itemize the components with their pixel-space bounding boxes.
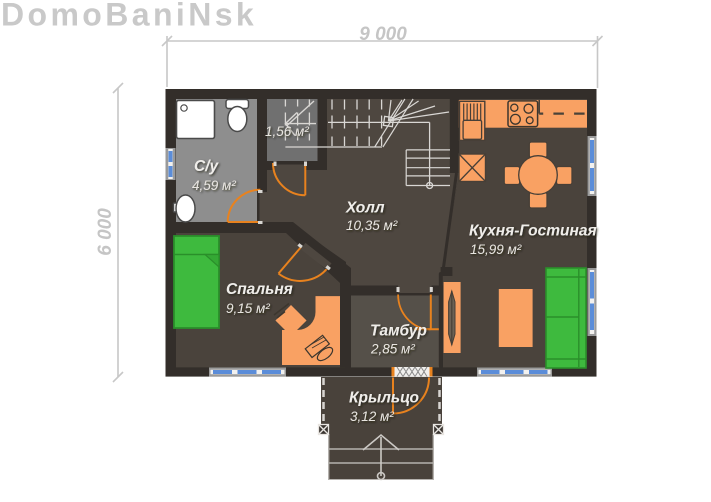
svg-text:3,12 м²: 3,12 м² — [350, 409, 394, 424]
svg-text:4,59 м²: 4,59 м² — [192, 178, 236, 193]
svg-text:9 000: 9 000 — [359, 24, 407, 45]
svg-text:10,35 м²: 10,35 м² — [346, 218, 398, 233]
svg-text:15,99 м²: 15,99 м² — [470, 242, 522, 257]
svg-text:2,85 м²: 2,85 м² — [370, 342, 415, 357]
svg-text:Холл: Холл — [345, 200, 385, 217]
svg-text:Спальня: Спальня — [226, 281, 293, 298]
svg-text:С/у: С/у — [194, 158, 220, 175]
svg-text:6 000: 6 000 — [95, 208, 116, 256]
svg-text:1,56 м²: 1,56 м² — [265, 124, 309, 139]
svg-text:DomoBaniNsk: DomoBaniNsk — [1, 0, 257, 33]
svg-text:Тамбур: Тамбур — [370, 323, 427, 340]
svg-text:Крыльцо: Крыльцо — [349, 390, 419, 407]
svg-text:Кухня-Гостиная: Кухня-Гостиная — [469, 223, 597, 240]
svg-text:9,15 м²: 9,15 м² — [226, 301, 270, 316]
